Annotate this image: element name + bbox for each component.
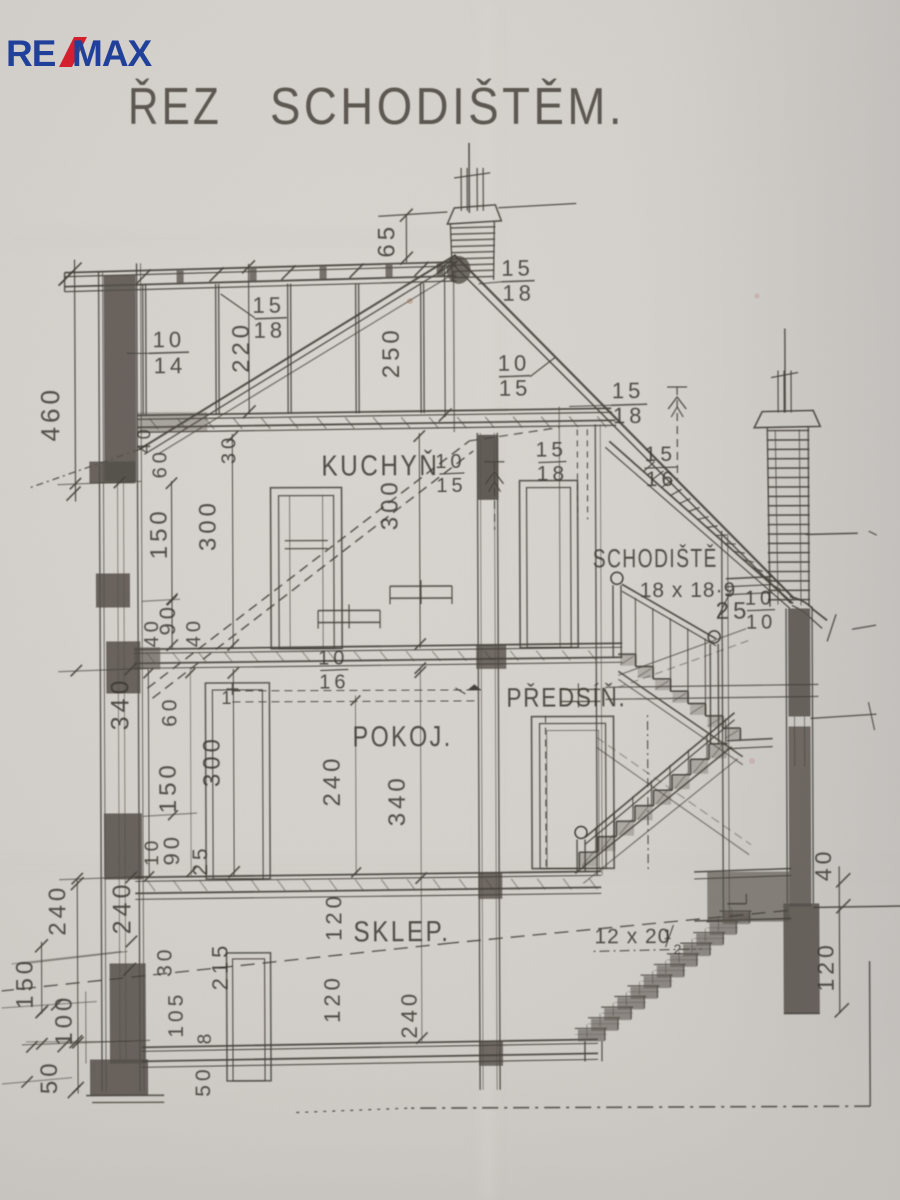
svg-text:240: 240 bbox=[108, 881, 136, 935]
svg-text:460: 460 bbox=[35, 386, 65, 442]
svg-text:MAX: MAX bbox=[72, 33, 153, 74]
svg-text:RE: RE bbox=[6, 33, 56, 74]
svg-text:SKLEP.: SKLEP. bbox=[353, 916, 450, 948]
svg-text:1: 1 bbox=[664, 926, 676, 942]
svg-text:215: 215 bbox=[207, 942, 232, 991]
svg-text:8: 8 bbox=[195, 1030, 216, 1045]
svg-text:120: 120 bbox=[320, 974, 345, 1023]
svg-text:PŘEDSÍŇ.: PŘEDSÍŇ. bbox=[506, 681, 626, 713]
svg-text:15: 15 bbox=[536, 438, 567, 461]
svg-text:40: 40 bbox=[141, 617, 163, 647]
svg-text:10: 10 bbox=[153, 327, 186, 352]
svg-text:120: 120 bbox=[812, 941, 838, 991]
svg-text:150: 150 bbox=[146, 507, 173, 559]
svg-text:15: 15 bbox=[645, 443, 676, 466]
svg-text:SCHODIŠTĚM.: SCHODIŠTĚM. bbox=[270, 78, 625, 136]
svg-text:10: 10 bbox=[745, 588, 775, 610]
svg-text:240: 240 bbox=[319, 754, 346, 806]
svg-text:50: 50 bbox=[192, 1065, 215, 1096]
svg-text:18: 18 bbox=[613, 403, 646, 428]
svg-text:18: 18 bbox=[537, 462, 568, 485]
svg-text:15: 15 bbox=[501, 256, 534, 281]
svg-text:240: 240 bbox=[397, 990, 422, 1039]
svg-text:250: 250 bbox=[378, 326, 405, 378]
svg-text:10: 10 bbox=[498, 351, 531, 376]
svg-text:10: 10 bbox=[318, 647, 348, 669]
svg-text:300: 300 bbox=[376, 478, 403, 530]
svg-text:60: 60 bbox=[158, 695, 181, 726]
svg-text:15: 15 bbox=[436, 475, 466, 497]
svg-text:SCHODIŠTĚ: SCHODIŠTĚ bbox=[593, 543, 718, 574]
svg-text:40: 40 bbox=[183, 617, 205, 647]
svg-text:POKOJ.: POKOJ. bbox=[353, 721, 453, 753]
svg-text:220: 220 bbox=[228, 321, 255, 373]
svg-text:ŘEZ: ŘEZ bbox=[128, 78, 222, 136]
svg-text:15: 15 bbox=[499, 376, 532, 401]
svg-text:10: 10 bbox=[746, 612, 776, 634]
svg-text:18: 18 bbox=[502, 281, 535, 306]
svg-text:14: 14 bbox=[154, 353, 187, 378]
svg-text:150: 150 bbox=[155, 761, 182, 813]
svg-text:100: 100 bbox=[51, 994, 78, 1046]
svg-text:300: 300 bbox=[195, 499, 222, 551]
svg-text:30: 30 bbox=[218, 434, 240, 464]
svg-text:15: 15 bbox=[612, 378, 645, 403]
svg-text:340: 340 bbox=[384, 774, 411, 826]
svg-text:KUCHYŇ: KUCHYŇ bbox=[321, 449, 439, 483]
svg-text:40: 40 bbox=[134, 425, 154, 453]
svg-text:10: 10 bbox=[435, 451, 465, 473]
svg-text:300: 300 bbox=[199, 735, 226, 787]
svg-text:18: 18 bbox=[254, 318, 287, 343]
svg-text:65: 65 bbox=[373, 223, 400, 258]
svg-text:240: 240 bbox=[44, 884, 71, 936]
svg-text:12 x 20: 12 x 20 bbox=[594, 925, 670, 948]
svg-text:40: 40 bbox=[810, 848, 836, 882]
svg-text:1: 1 bbox=[221, 688, 235, 708]
svg-text:16: 16 bbox=[646, 468, 677, 491]
svg-text:50: 50 bbox=[36, 1059, 63, 1094]
svg-text:30: 30 bbox=[154, 946, 177, 977]
svg-text:120: 120 bbox=[321, 892, 346, 941]
svg-text:15: 15 bbox=[252, 293, 285, 318]
svg-text:105: 105 bbox=[165, 991, 188, 1038]
svg-text:16: 16 bbox=[319, 671, 349, 693]
svg-text:10: 10 bbox=[142, 837, 163, 866]
svg-text:2: 2 bbox=[674, 941, 686, 957]
svg-text:150: 150 bbox=[12, 957, 39, 1009]
svg-text:340: 340 bbox=[106, 677, 134, 731]
